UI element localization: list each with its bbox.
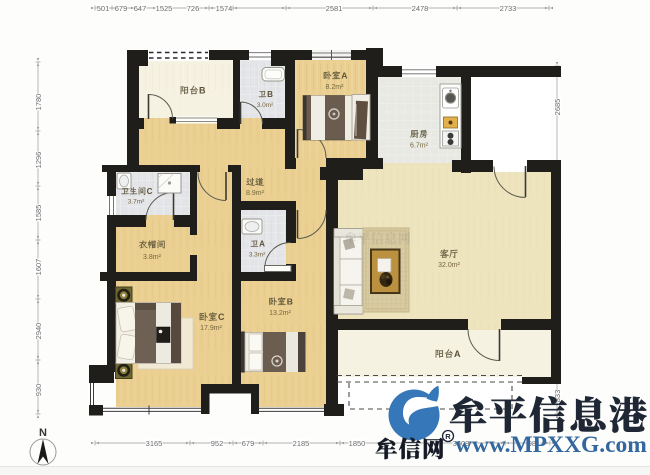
svg-text:32.0m²: 32.0m² xyxy=(438,262,460,269)
svg-text:B: B xyxy=(287,297,293,307)
svg-text:A: A xyxy=(259,240,265,249)
svg-text:1850: 1850 xyxy=(349,439,366,448)
svg-text:3.7m²: 3.7m² xyxy=(128,199,145,206)
svg-text:R: R xyxy=(445,432,451,441)
svg-text:A: A xyxy=(341,71,347,81)
svg-text:2940: 2940 xyxy=(34,323,43,340)
svg-text:B: B xyxy=(267,90,273,99)
svg-text:2685: 2685 xyxy=(553,99,562,116)
svg-text:952: 952 xyxy=(211,439,224,448)
svg-text:1574: 1574 xyxy=(216,4,233,13)
svg-text:2733: 2733 xyxy=(500,4,517,13)
svg-text:2478: 2478 xyxy=(412,4,429,13)
svg-text:3.8m²: 3.8m² xyxy=(143,254,162,261)
svg-text:8.2m²: 8.2m² xyxy=(326,84,345,91)
svg-text:930: 930 xyxy=(34,384,43,397)
svg-text:B: B xyxy=(199,86,206,96)
svg-text:2185: 2185 xyxy=(293,439,310,448)
svg-text:726: 726 xyxy=(187,4,200,13)
svg-text:6.7m²: 6.7m² xyxy=(410,143,429,150)
svg-text:N: N xyxy=(39,427,47,439)
svg-text:C: C xyxy=(218,312,225,322)
svg-text:C: C xyxy=(147,187,153,196)
svg-text:A: A xyxy=(454,349,461,359)
svg-text:1296: 1296 xyxy=(34,152,43,169)
svg-text:647: 647 xyxy=(134,4,147,13)
svg-text:3.3m²: 3.3m² xyxy=(249,252,266,259)
svg-text:13.2m²: 13.2m² xyxy=(269,310,291,317)
svg-text:679: 679 xyxy=(242,439,255,448)
svg-text:2581: 2581 xyxy=(326,4,343,13)
svg-text:1780: 1780 xyxy=(34,94,43,111)
svg-text:3165: 3165 xyxy=(146,439,163,448)
svg-text:3.0m²: 3.0m² xyxy=(257,102,274,109)
svg-text:1585: 1585 xyxy=(34,205,43,222)
svg-text:501: 501 xyxy=(97,4,110,13)
svg-text:1525: 1525 xyxy=(156,4,173,13)
svg-text:17.9m²: 17.9m² xyxy=(200,325,222,332)
svg-text:679: 679 xyxy=(115,4,128,13)
svg-text:1607: 1607 xyxy=(34,259,43,276)
svg-text:www.MPXXG.com: www.MPXXG.com xyxy=(455,432,647,458)
svg-text:8.9m²: 8.9m² xyxy=(246,190,265,197)
